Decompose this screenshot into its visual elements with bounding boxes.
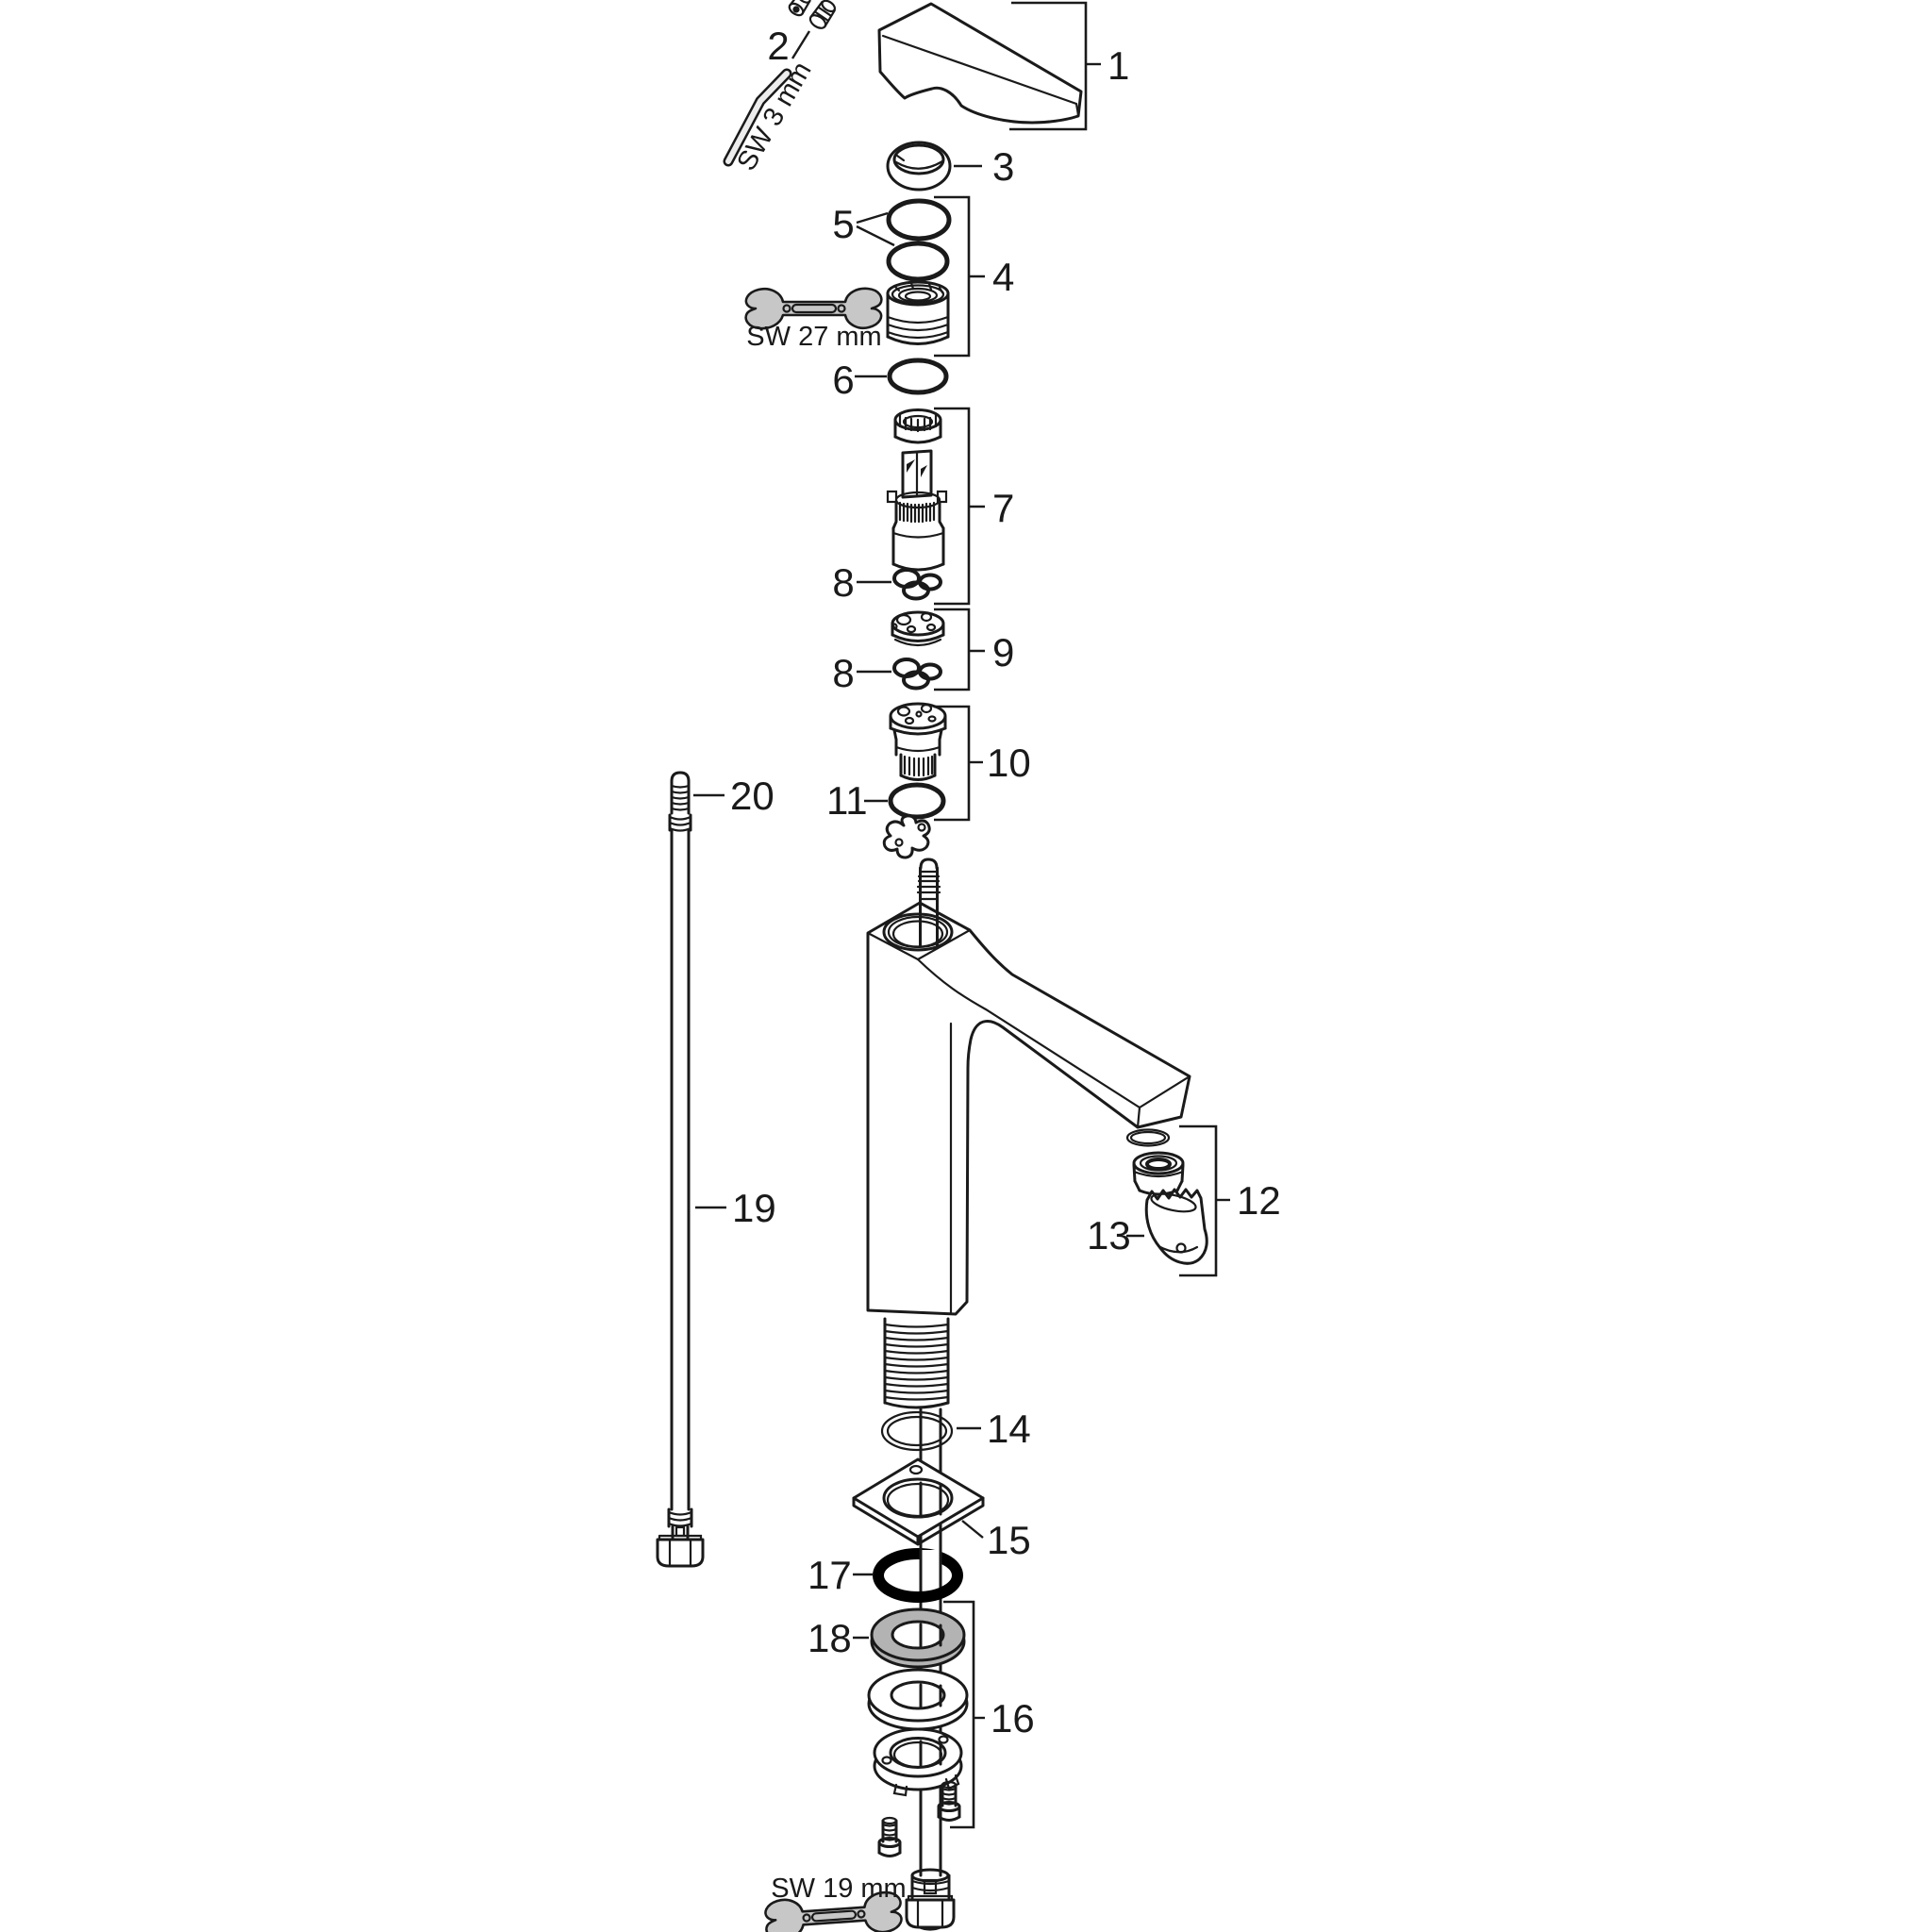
part-5-orings: 5 xyxy=(832,201,949,279)
part-7-label: 7 xyxy=(992,486,1014,530)
part-3-cap-ring: 3 xyxy=(888,142,1014,190)
white-washer xyxy=(869,1670,967,1729)
wrench-19-tool: SW 19 mm xyxy=(764,1874,906,1932)
cartridge-body xyxy=(888,451,946,570)
part-15-label: 15 xyxy=(987,1518,1031,1562)
part-2-set-screws: 2 xyxy=(767,0,838,68)
part-15-escutcheon-plate: 15 xyxy=(854,1459,1031,1562)
part-10-diverter: 10 xyxy=(891,704,1031,820)
wrench-27-size-label: SW 27 mm xyxy=(746,322,881,352)
faucet-exploded-diagram: 2 SW 3 mm 1 3 5 xyxy=(0,0,1932,1932)
part-2-label: 2 xyxy=(767,24,789,68)
pipe-body xyxy=(672,830,689,1509)
part-19-label: 19 xyxy=(732,1186,776,1230)
part-18-washer: 18 xyxy=(808,1609,964,1667)
fixing-screw-left xyxy=(879,1818,900,1857)
part-14-label: 14 xyxy=(987,1407,1031,1451)
part-11-oring: 11 xyxy=(826,778,943,823)
part-12-label: 12 xyxy=(1237,1178,1281,1223)
part-11-label: 11 xyxy=(826,778,868,823)
body-threaded-shank xyxy=(885,1319,948,1407)
faucet-body-outline xyxy=(868,903,1190,1314)
pipe-nut xyxy=(658,1540,703,1566)
part-8a-seal-set: 8 xyxy=(832,560,941,605)
part-3-label: 3 xyxy=(992,144,1014,189)
part-8b-seal-set: 8 xyxy=(832,651,941,695)
part-5-label: 5 xyxy=(832,202,854,246)
part-17-seal-ring: 17 xyxy=(808,1549,958,1597)
part-17-label: 17 xyxy=(808,1553,852,1597)
allen-key-size-label: SW 3 mm xyxy=(731,57,817,175)
part-8a-label: 8 xyxy=(832,560,854,605)
part-1-label: 1 xyxy=(1108,43,1129,88)
aerator-insert xyxy=(1134,1153,1183,1194)
part-10-label: 10 xyxy=(987,741,1031,785)
part-8b-label: 8 xyxy=(832,651,854,695)
part-9-label: 9 xyxy=(992,630,1014,675)
part-4-label: 4 xyxy=(992,255,1014,299)
hose-end-connector xyxy=(907,1870,954,1930)
part-4-bracket xyxy=(934,197,969,356)
cap-nut xyxy=(895,410,941,443)
part-1-handle: 1 xyxy=(879,3,1129,129)
wrench-19-size-label: SW 19 mm xyxy=(771,1874,906,1904)
part-20-label: 20 xyxy=(730,774,774,818)
part-13-label: 13 xyxy=(1087,1213,1131,1257)
part-14-oring: 14 xyxy=(882,1407,1031,1451)
part-13-aerator-housing xyxy=(1146,1190,1207,1263)
mounting-flange xyxy=(874,1729,961,1795)
part-6-oring: 6 xyxy=(832,358,946,402)
part-6-label: 6 xyxy=(832,358,854,402)
handle-outline xyxy=(879,4,1081,123)
part-7-cartridge: 7 xyxy=(888,408,1014,604)
cross-gasket xyxy=(884,816,929,858)
exploded-parts-diagram-page: 2 SW 3 mm 1 3 5 xyxy=(0,0,1932,1932)
wrench-27-tool: SW 27 mm xyxy=(746,289,882,352)
part-15-leader xyxy=(962,1521,983,1538)
part-12-aerator-assembly: 12 13 xyxy=(1087,1126,1281,1275)
pipe-over-ring17 xyxy=(920,1550,942,1566)
part-18-label: 18 xyxy=(808,1616,852,1660)
allen-key-tool: SW 3 mm xyxy=(728,57,818,175)
hose-nut xyxy=(907,1900,954,1927)
part-2-leader xyxy=(792,31,809,58)
set-screw-small xyxy=(788,0,813,18)
set-screw-large xyxy=(808,0,838,31)
part-16-label: 16 xyxy=(991,1696,1035,1740)
supply-pipe: 20 19 xyxy=(658,773,776,1566)
